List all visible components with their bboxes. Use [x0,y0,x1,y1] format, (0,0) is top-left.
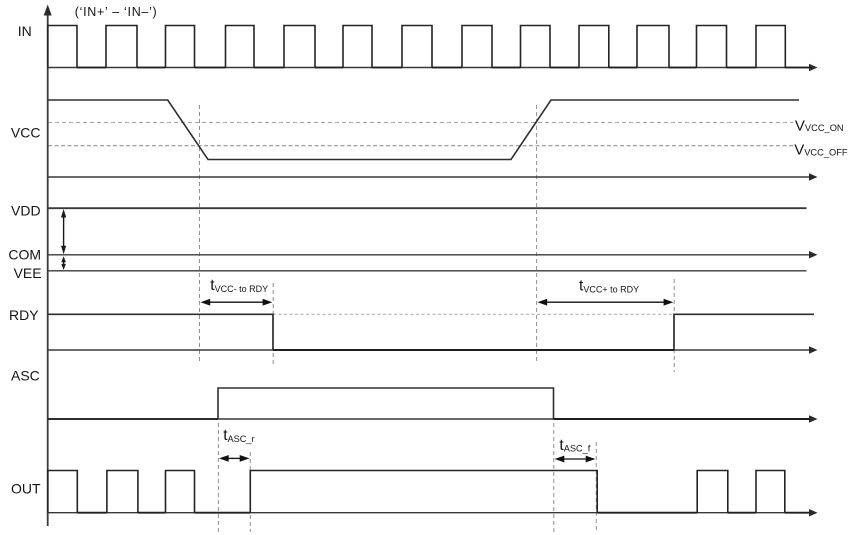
svg-text:VDD: VDD [11,203,41,219]
svg-text:VCC: VCC [11,124,41,140]
svg-text:(‘IN+’ – ‘IN–’): (‘IN+’ – ‘IN–’) [75,5,158,19]
svg-text:OUT: OUT [11,480,41,496]
svg-text:VEE: VEE [14,265,42,281]
svg-text:ASC: ASC [11,367,40,383]
svg-text:RDY: RDY [9,307,39,323]
svg-text:IN: IN [18,23,32,39]
svg-text:COM: COM [8,247,41,263]
